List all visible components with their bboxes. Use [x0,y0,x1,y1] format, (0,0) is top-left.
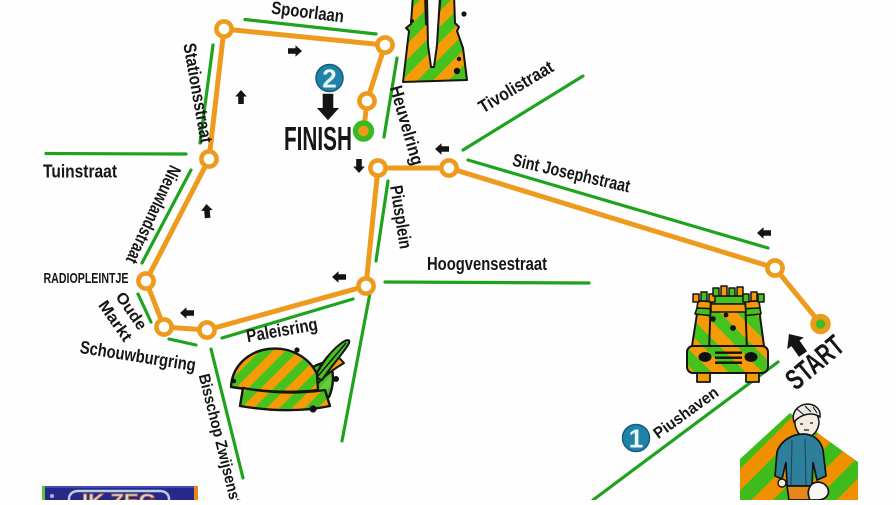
svg-text:2: 2 [322,64,336,94]
svg-text:RADIOPLEINTJE: RADIOPLEINTJE [44,270,129,287]
svg-text:IK ZEG: IK ZEG [82,491,156,500]
svg-text:Nieuwlandstraat: Nieuwlandstraat [122,162,185,267]
svg-text:Tivolistraat: Tivolistraat [475,57,557,117]
svg-text:Hoogvensestraat: Hoogvensestraat [427,254,547,274]
svg-text:Piusplein: Piusplein [386,184,416,250]
svg-text:Tuinstraat: Tuinstraat [43,162,117,182]
svg-text:FINISH: FINISH [284,120,352,157]
svg-text:1: 1 [629,424,643,454]
svg-text:Heuvelring: Heuvelring [386,83,428,167]
